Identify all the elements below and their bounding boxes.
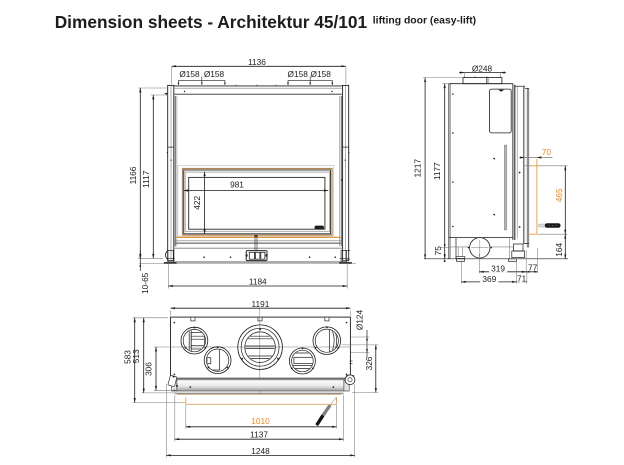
svg-text:369: 369 [482, 274, 496, 284]
svg-text:70: 70 [542, 147, 552, 157]
svg-text:77: 77 [528, 262, 538, 272]
svg-text:981: 981 [230, 180, 244, 190]
svg-text:1184: 1184 [249, 276, 267, 286]
svg-text:1217: 1217 [413, 159, 423, 178]
svg-text:326: 326 [364, 356, 374, 370]
svg-text:1248: 1248 [251, 446, 270, 456]
svg-text:422: 422 [192, 195, 202, 209]
svg-text:10-65: 10-65 [140, 272, 150, 294]
svg-text:306: 306 [143, 362, 153, 376]
svg-text:1136: 1136 [248, 57, 266, 67]
svg-text:lifting door (easy-lift): lifting door (easy-lift) [373, 15, 476, 26]
svg-text:Ø248: Ø248 [472, 63, 493, 73]
svg-text:75: 75 [433, 246, 443, 256]
svg-text:1177: 1177 [432, 162, 442, 180]
svg-text:465: 465 [554, 188, 564, 202]
svg-text:Ø158: Ø158 [179, 69, 200, 79]
svg-text:1137: 1137 [250, 430, 268, 440]
svg-text:Ø158: Ø158 [204, 69, 225, 79]
svg-text:1166: 1166 [128, 166, 138, 184]
svg-text:Dimension sheets - Architektur: Dimension sheets - Architektur 45/101 [55, 12, 368, 32]
svg-text:71: 71 [517, 273, 527, 283]
svg-text:164: 164 [554, 242, 564, 256]
svg-text:Ø158: Ø158 [311, 69, 332, 79]
svg-text:513: 513 [131, 349, 141, 363]
svg-text:1010: 1010 [251, 416, 270, 426]
svg-text:1191: 1191 [252, 299, 270, 309]
svg-text:1117: 1117 [141, 170, 151, 188]
svg-text:Ø124: Ø124 [354, 309, 364, 330]
svg-text:319: 319 [491, 263, 505, 273]
svg-text:Ø158: Ø158 [288, 69, 309, 79]
